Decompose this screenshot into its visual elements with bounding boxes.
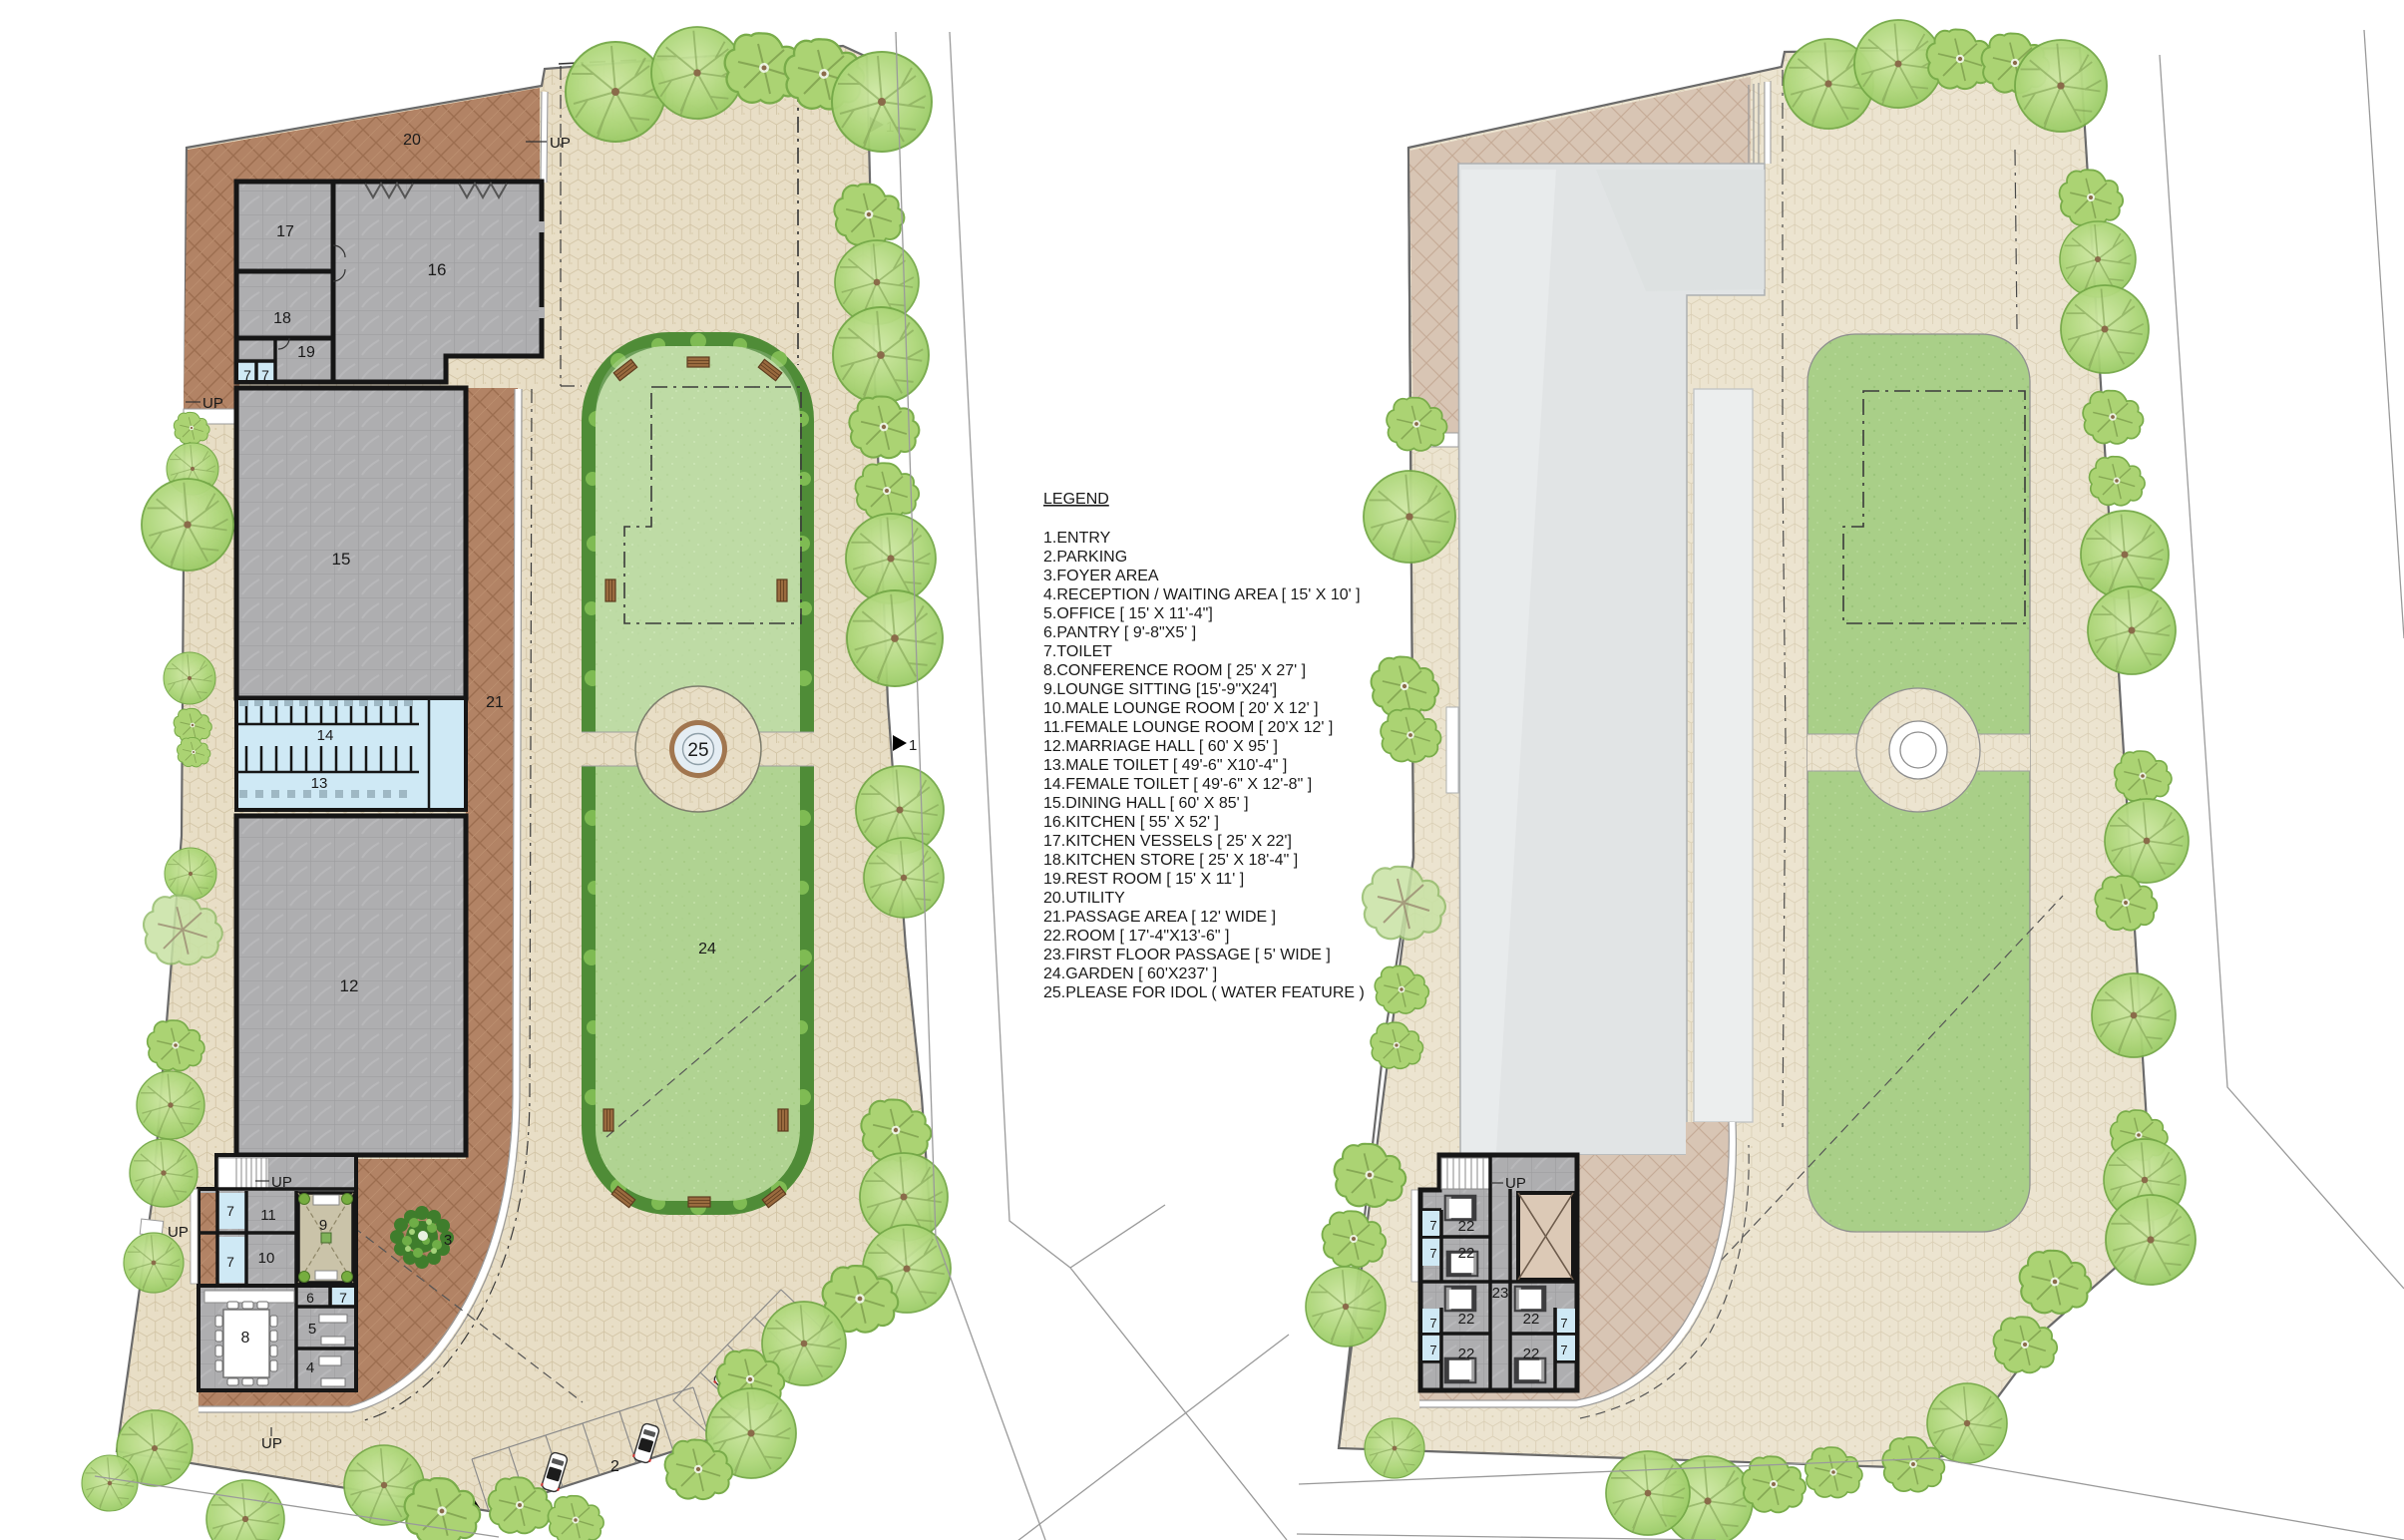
svg-text:7: 7 — [1560, 1316, 1567, 1331]
svg-text:5.OFFICE [ 15' X 11'-4"]: 5.OFFICE [ 15' X 11'-4"] — [1043, 605, 1213, 622]
svg-text:7: 7 — [1429, 1316, 1436, 1331]
svg-text:7: 7 — [1560, 1343, 1567, 1357]
svg-text:7: 7 — [339, 1290, 347, 1306]
svg-text:7: 7 — [1429, 1218, 1436, 1233]
svg-text:7.TOILET: 7.TOILET — [1043, 643, 1112, 660]
svg-text:23: 23 — [1492, 1285, 1509, 1302]
svg-text:UP: UP — [261, 1435, 282, 1452]
svg-text:24: 24 — [698, 941, 716, 958]
svg-text:24.GARDEN [ 60'X237' ]: 24.GARDEN [ 60'X237' ] — [1043, 965, 1217, 982]
svg-text:3: 3 — [444, 1232, 452, 1249]
svg-text:9.LOUNGE SITTING [15'-9"X24']: 9.LOUNGE SITTING [15'-9"X24'] — [1043, 681, 1277, 698]
svg-text:7: 7 — [1429, 1343, 1436, 1357]
svg-text:22: 22 — [1458, 1218, 1475, 1235]
svg-text:12.MARRIAGE HALL [ 60' X 95' ]: 12.MARRIAGE HALL [ 60' X 95' ] — [1043, 738, 1278, 755]
svg-text:17: 17 — [276, 223, 294, 240]
svg-text:10: 10 — [258, 1250, 275, 1267]
svg-text:22: 22 — [1458, 1245, 1475, 1262]
svg-text:4: 4 — [306, 1359, 314, 1376]
svg-text:9: 9 — [319, 1217, 327, 1234]
svg-text:13.MALE TOILET [ 49'-6" X10'-4: 13.MALE TOILET [ 49'-6" X10'-4" ] — [1043, 757, 1287, 774]
svg-text:21.PASSAGE AREA [ 12' WIDE ]: 21.PASSAGE AREA [ 12' WIDE ] — [1043, 909, 1276, 926]
svg-text:22: 22 — [1458, 1346, 1475, 1362]
svg-text:3.FOYER AREA: 3.FOYER AREA — [1043, 568, 1159, 584]
svg-text:7: 7 — [226, 1203, 234, 1219]
svg-text:22: 22 — [1523, 1346, 1540, 1362]
svg-text:6: 6 — [306, 1290, 314, 1306]
svg-text:16: 16 — [428, 260, 447, 279]
svg-text:14.FEMALE TOILET [ 49'-6" X 12: 14.FEMALE TOILET [ 49'-6" X 12'-8" ] — [1043, 776, 1312, 793]
svg-text:7: 7 — [226, 1254, 234, 1270]
svg-text:14: 14 — [317, 727, 334, 744]
svg-text:22: 22 — [1523, 1311, 1540, 1328]
svg-text:17.KITCHEN VESSELS [ 25' X 22': 17.KITCHEN VESSELS [ 25' X 22'] — [1043, 833, 1292, 850]
svg-text:15: 15 — [332, 550, 351, 569]
svg-text:8: 8 — [241, 1330, 250, 1347]
svg-text:7: 7 — [243, 367, 251, 383]
svg-text:19: 19 — [297, 344, 315, 361]
svg-text:13: 13 — [311, 775, 328, 792]
svg-text:4.RECEPTION / WAITING AREA [ 1: 4.RECEPTION / WAITING AREA [ 15' X 10' ] — [1043, 586, 1361, 603]
svg-text:18: 18 — [273, 310, 291, 327]
svg-text:22: 22 — [1458, 1311, 1475, 1328]
svg-text:10.MALE LOUNGE ROOM [ 20' X 12: 10.MALE LOUNGE ROOM [ 20' X 12' ] — [1043, 700, 1319, 717]
svg-text:12: 12 — [340, 976, 359, 995]
svg-text:UP: UP — [1505, 1175, 1526, 1192]
svg-text:6.PANTRY [ 9'-8"X5' ]: 6.PANTRY [ 9'-8"X5' ] — [1043, 624, 1196, 641]
svg-text:25: 25 — [687, 740, 708, 761]
svg-text:25.PLEASE FOR IDOL ( WATER FEA: 25.PLEASE FOR IDOL ( WATER FEATURE ) — [1043, 984, 1365, 1001]
svg-text:2: 2 — [610, 1458, 619, 1475]
svg-text:UP: UP — [202, 395, 223, 412]
svg-text:7: 7 — [1429, 1246, 1436, 1261]
svg-text:11: 11 — [260, 1207, 276, 1224]
svg-text:22.ROOM [ 17'-4"X13'-6" ]: 22.ROOM [ 17'-4"X13'-6" ] — [1043, 928, 1229, 945]
svg-text:2.PARKING: 2.PARKING — [1043, 549, 1127, 566]
svg-text:21: 21 — [486, 694, 504, 711]
svg-text:7: 7 — [261, 367, 269, 383]
svg-text:23.FIRST FLOOR PASSAGE [ 5' WI: 23.FIRST FLOOR PASSAGE [ 5' WIDE ] — [1043, 947, 1331, 963]
svg-text:20: 20 — [403, 132, 421, 149]
svg-text:19.REST ROOM [ 15' X 11' ]: 19.REST ROOM [ 15' X 11' ] — [1043, 871, 1244, 888]
svg-text:LEGEND: LEGEND — [1043, 491, 1109, 508]
svg-text:18.KITCHEN STORE [ 25' X 18'-4: 18.KITCHEN STORE [ 25' X 18'-4" ] — [1043, 852, 1298, 869]
svg-text:8.CONFERENCE ROOM [ 25' X 27': 8.CONFERENCE ROOM [ 25' X 27' ] — [1043, 662, 1306, 679]
svg-text:15.DINING HALL [ 60' X 85' ]: 15.DINING HALL [ 60' X 85' ] — [1043, 795, 1249, 812]
svg-text:1.ENTRY: 1.ENTRY — [1043, 530, 1111, 547]
svg-text:11.FEMALE LOUNGE ROOM [ 20'X 1: 11.FEMALE LOUNGE ROOM [ 20'X 12' ] — [1043, 719, 1333, 736]
svg-text:1: 1 — [909, 737, 917, 754]
svg-text:5: 5 — [308, 1321, 316, 1338]
svg-text:20.UTILITY: 20.UTILITY — [1043, 890, 1125, 907]
svg-text:16.KITCHEN [ 55' X 52' ]: 16.KITCHEN [ 55' X 52' ] — [1043, 814, 1219, 831]
svg-text:UP: UP — [550, 135, 571, 152]
